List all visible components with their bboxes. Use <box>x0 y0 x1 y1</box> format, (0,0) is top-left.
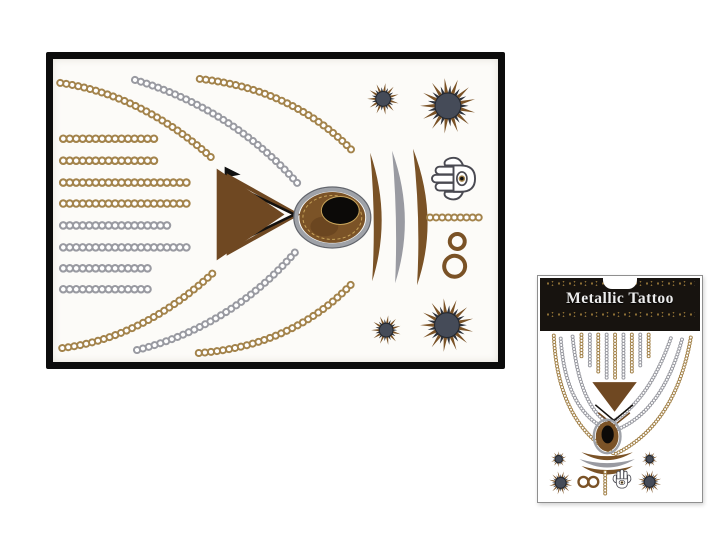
triangle-pendant-icon <box>217 167 297 261</box>
package-vertical-chains <box>581 335 648 380</box>
sunburst-icon <box>420 78 475 133</box>
infinity-icon <box>443 233 468 278</box>
package-infinity-icon <box>579 477 599 487</box>
sunburst-icon <box>549 471 572 494</box>
crescent-icons <box>370 149 427 286</box>
tattoo-sheet-photo <box>46 52 505 369</box>
hang-tab <box>603 276 637 289</box>
sunburst-icon <box>367 83 398 114</box>
sunburst-icon <box>642 451 657 467</box>
package-title: Metallic Tattoo <box>540 290 700 308</box>
sunburst-icon <box>371 315 400 345</box>
package-oval-gem-icon <box>594 420 621 454</box>
sunburst-icon <box>420 298 473 351</box>
package-photo: Metallic Tattoo <box>537 275 703 503</box>
sunburst-icon <box>551 451 566 467</box>
filigree-ornament-bottom <box>545 311 695 318</box>
hamsa-icon <box>432 158 475 200</box>
tattoo-sheet-art <box>53 59 498 362</box>
oval-gem-icon <box>294 187 371 248</box>
chain-rows <box>63 139 191 290</box>
product-photo-canvas: Metallic Tattoo <box>0 0 720 535</box>
sunburst-icon <box>638 470 661 493</box>
